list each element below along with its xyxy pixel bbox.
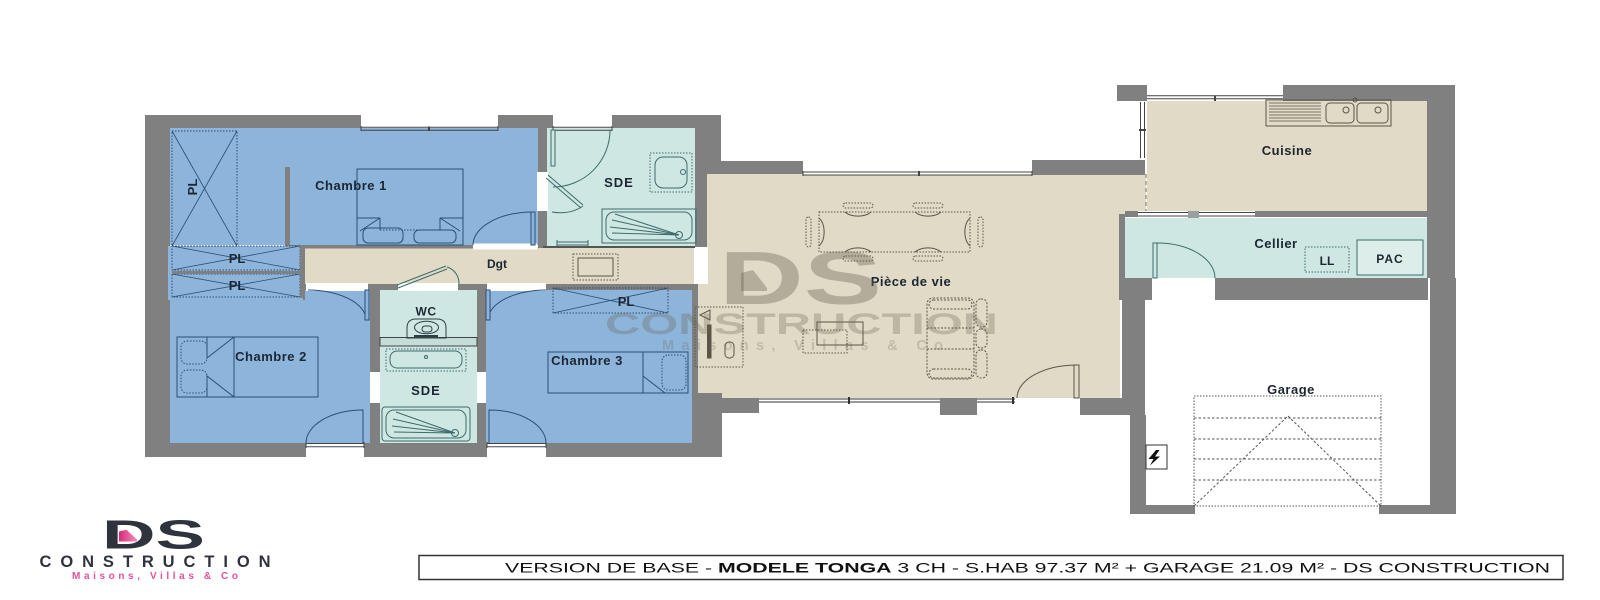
- svg-text:Chambre 2: Chambre 2: [235, 349, 307, 364]
- svg-text:SDE: SDE: [604, 175, 634, 190]
- svg-text:LL: LL: [1320, 254, 1335, 268]
- svg-text:WC: WC: [416, 305, 437, 319]
- svg-text:DS: DS: [102, 512, 205, 558]
- svg-text:Chambre 1: Chambre 1: [315, 178, 387, 193]
- svg-text:PL: PL: [185, 179, 200, 196]
- svg-text:Garage: Garage: [1267, 382, 1315, 397]
- svg-text:Dgt: Dgt: [487, 257, 507, 271]
- svg-text:PL: PL: [618, 294, 635, 309]
- svg-text:PAC: PAC: [1376, 252, 1403, 266]
- svg-text:VERSION DE BASE - MODELE TONGA: VERSION DE BASE - MODELE TONGA 3 CH - S.…: [505, 560, 1550, 576]
- svg-text:PL: PL: [229, 251, 246, 266]
- svg-text:Cellier: Cellier: [1254, 236, 1297, 251]
- svg-text:Pièce de vie: Pièce de vie: [871, 274, 951, 289]
- svg-text:Chambre 3: Chambre 3: [551, 353, 623, 368]
- svg-text:CONSTRUCTION: CONSTRUCTION: [605, 308, 998, 341]
- svg-text:SDE: SDE: [411, 383, 441, 398]
- svg-text:PL: PL: [229, 278, 246, 293]
- svg-text:Cuisine: Cuisine: [1262, 143, 1312, 158]
